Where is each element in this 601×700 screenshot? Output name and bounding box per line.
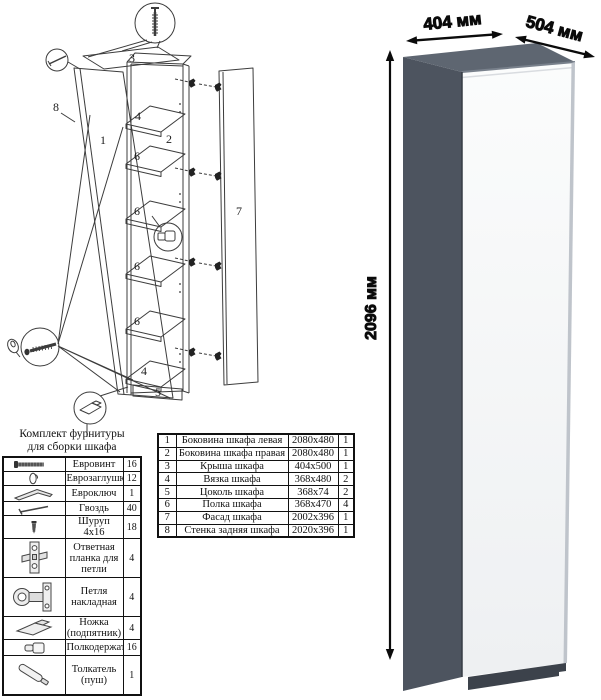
hardware-name: Шуруп 4x16 bbox=[65, 516, 123, 539]
hardware-name: Гвоздь bbox=[65, 502, 123, 516]
hardware-name: Еврозаглушка bbox=[65, 472, 123, 486]
part-number: 8 bbox=[158, 524, 176, 537]
euro-screw-icon bbox=[12, 458, 56, 471]
table-row: Гвоздь 40 bbox=[3, 502, 141, 516]
part-name: Вязка шкафа bbox=[176, 473, 288, 486]
hardware-qty: 18 bbox=[123, 516, 141, 539]
hinge-icon bbox=[7, 578, 61, 616]
carcass-drawing bbox=[127, 53, 191, 395]
hardware-name: Евроключ bbox=[65, 486, 123, 502]
part-number: 4 bbox=[158, 473, 176, 486]
part-size: 2080x480 bbox=[288, 447, 338, 460]
part-number: 2 bbox=[158, 447, 176, 460]
assembly-instruction-sheet: 1 2 3 4 6 6 6 6 4 5 7 8 bbox=[0, 0, 601, 700]
exploded-view-drawing bbox=[6, 3, 258, 437]
wardrobe-front-door bbox=[462, 62, 575, 677]
shelf-support-callout bbox=[152, 216, 182, 251]
hardware-icon-cell bbox=[3, 516, 65, 539]
part-label-4-bottom: 4 bbox=[141, 364, 147, 378]
table-row: 6 Полка шкафа 368x470 4 bbox=[158, 498, 354, 511]
part-size: 368x470 bbox=[288, 498, 338, 511]
euro-key-glyph bbox=[6, 338, 21, 357]
hardware-name: Полкодержатель bbox=[65, 640, 123, 656]
hardware-name: Толкатель (пуш) bbox=[65, 656, 123, 696]
part-size: 368x480 bbox=[288, 473, 338, 486]
hardware-icon-cell bbox=[3, 656, 65, 696]
table-row: Ответная планка для петли 4 bbox=[3, 539, 141, 578]
part-label-4-top: 4 bbox=[135, 109, 141, 123]
hardware-name: Ответная планка для петли bbox=[65, 539, 123, 578]
table-row: Толкатель (пуш) 1 bbox=[3, 656, 141, 696]
hardware-qty: 1 bbox=[123, 656, 141, 696]
part-qty: 1 bbox=[338, 460, 354, 473]
hardware-name: Ножка (подпятник) bbox=[65, 617, 123, 640]
part-name: Цоколь шкафа bbox=[176, 486, 288, 499]
part-label-3: 3 bbox=[129, 51, 135, 65]
euroscrew-callout bbox=[6, 115, 170, 398]
part-number: 5 bbox=[158, 486, 176, 499]
part-size: 2002x396 bbox=[288, 511, 338, 524]
part-label-5: 5 bbox=[155, 385, 161, 399]
hardware-qty: 1 bbox=[123, 486, 141, 502]
part-label-6-4: 6 bbox=[134, 314, 140, 328]
hardware-qty: 12 bbox=[123, 472, 141, 486]
depth-dimension-label: 504 мм bbox=[524, 12, 585, 45]
table-row: 1 Боковина шкафа левая 2080x480 1 bbox=[158, 434, 354, 447]
part-number: 6 bbox=[158, 498, 176, 511]
hardware-icon-cell bbox=[3, 457, 65, 472]
hardware-kit-title-line1: Комплект фурнитуры bbox=[19, 428, 124, 440]
part-qty: 2 bbox=[338, 486, 354, 499]
part-qty: 1 bbox=[338, 434, 354, 447]
part-label-6-2: 6 bbox=[134, 204, 140, 218]
hardware-kit-title-line2: для сборки шкафа bbox=[28, 441, 117, 453]
table-row: Шуруп 4x16 18 bbox=[3, 516, 141, 539]
table-row: Евровинт 16 bbox=[3, 457, 141, 472]
part-size: 368x74 bbox=[288, 486, 338, 499]
push-latch-icon bbox=[7, 656, 61, 694]
part-label-6-1: 6 bbox=[134, 149, 140, 163]
parts-list-table: 1 Боковина шкафа левая 2080x480 1 2 Боко… bbox=[157, 433, 355, 538]
hardware-name: Петля накладная bbox=[65, 578, 123, 617]
striker-plate-icon bbox=[9, 539, 59, 577]
hardware-kit-table: Евровинт 16 Еврозаглушка 12 Евроключ 1 bbox=[2, 456, 142, 696]
screw-callout bbox=[135, 3, 175, 43]
table-row: Евроключ 1 bbox=[3, 486, 141, 502]
table-row: 2 Боковина шкафа правая 2080x480 1 bbox=[158, 447, 354, 460]
height-dimension: 2096 мм bbox=[363, 50, 394, 660]
euro-cap-icon bbox=[12, 472, 56, 485]
part-qty: 1 bbox=[338, 524, 354, 537]
hardware-qty: 16 bbox=[123, 457, 141, 472]
table-row: Ножка (подпятник) 4 bbox=[3, 617, 141, 640]
part-number: 3 bbox=[158, 460, 176, 473]
part-size: 2080x480 bbox=[288, 434, 338, 447]
part-number-labels: 1 2 3 4 6 6 6 6 4 5 7 8 bbox=[53, 51, 242, 399]
table-row: 8 Стенка задняя шкафа 2020x396 1 bbox=[158, 524, 354, 537]
hardware-qty: 4 bbox=[123, 578, 141, 617]
table-row: Полкодержатель 16 bbox=[3, 640, 141, 656]
width-dimension: 404 мм bbox=[406, 9, 503, 44]
wardrobe-render bbox=[403, 43, 575, 691]
hardware-icon-cell bbox=[3, 486, 65, 502]
part-label-6-3: 6 bbox=[134, 259, 140, 273]
part-number: 1 bbox=[158, 434, 176, 447]
hardware-icon-cell bbox=[3, 502, 65, 516]
part-name: Боковина шкафа правая bbox=[176, 447, 288, 460]
width-dimension-label: 404 мм bbox=[422, 9, 482, 34]
part-size: 404x500 bbox=[288, 460, 338, 473]
hardware-qty: 4 bbox=[123, 539, 141, 578]
part-qty: 4 bbox=[338, 498, 354, 511]
part-label-8: 8 bbox=[53, 100, 59, 114]
wardrobe-side-face bbox=[403, 57, 462, 691]
door-panel-drawing bbox=[219, 68, 258, 385]
foot-icon bbox=[9, 618, 59, 638]
table-row: 5 Цоколь шкафа 368x74 2 bbox=[158, 486, 354, 499]
part-qty: 1 bbox=[338, 511, 354, 524]
part-name: Фасад шкафа bbox=[176, 511, 288, 524]
part-qty: 2 bbox=[338, 473, 354, 486]
part-name: Крыша шкафа bbox=[176, 460, 288, 473]
plinth-right-return bbox=[559, 663, 566, 672]
part-label-1: 1 bbox=[100, 133, 106, 147]
table-row: 7 Фасад шкафа 2002x396 1 bbox=[158, 511, 354, 524]
hardware-icon-cell bbox=[3, 578, 65, 617]
table-row: 4 Вязка шкафа 368x480 2 bbox=[158, 473, 354, 486]
part-label-2: 2 bbox=[166, 132, 172, 146]
table-row: 3 Крыша шкафа 404x500 1 bbox=[158, 460, 354, 473]
hardware-qty: 40 bbox=[123, 502, 141, 516]
part-name: Полка шкафа bbox=[176, 498, 288, 511]
hardware-qty: 16 bbox=[123, 640, 141, 656]
nail-icon bbox=[12, 503, 56, 515]
height-dimension-label: 2096 мм bbox=[363, 276, 380, 340]
part-size: 2020x396 bbox=[288, 524, 338, 537]
part-name: Стенка задняя шкафа bbox=[176, 524, 288, 537]
part-name: Боковина шкафа левая bbox=[176, 434, 288, 447]
shelf-support-icon bbox=[12, 640, 56, 655]
part-qty: 1 bbox=[338, 447, 354, 460]
hex-key-icon bbox=[10, 486, 58, 501]
hardware-icon-cell bbox=[3, 539, 65, 578]
hardware-icon-cell bbox=[3, 472, 65, 486]
hardware-icon-cell bbox=[3, 617, 65, 640]
screw-icon bbox=[12, 520, 56, 535]
part-label-7: 7 bbox=[236, 204, 242, 218]
hardware-kit-title: Комплект фурнитуры для сборки шкафа bbox=[4, 428, 140, 453]
hardware-icon-cell bbox=[3, 640, 65, 656]
hardware-qty: 4 bbox=[123, 617, 141, 640]
part-number: 7 bbox=[158, 511, 176, 524]
hardware-name: Евровинт bbox=[65, 457, 123, 472]
label8-leader bbox=[61, 113, 75, 122]
table-row: Еврозаглушка 12 bbox=[3, 472, 141, 486]
table-row: Петля накладная 4 bbox=[3, 578, 141, 617]
